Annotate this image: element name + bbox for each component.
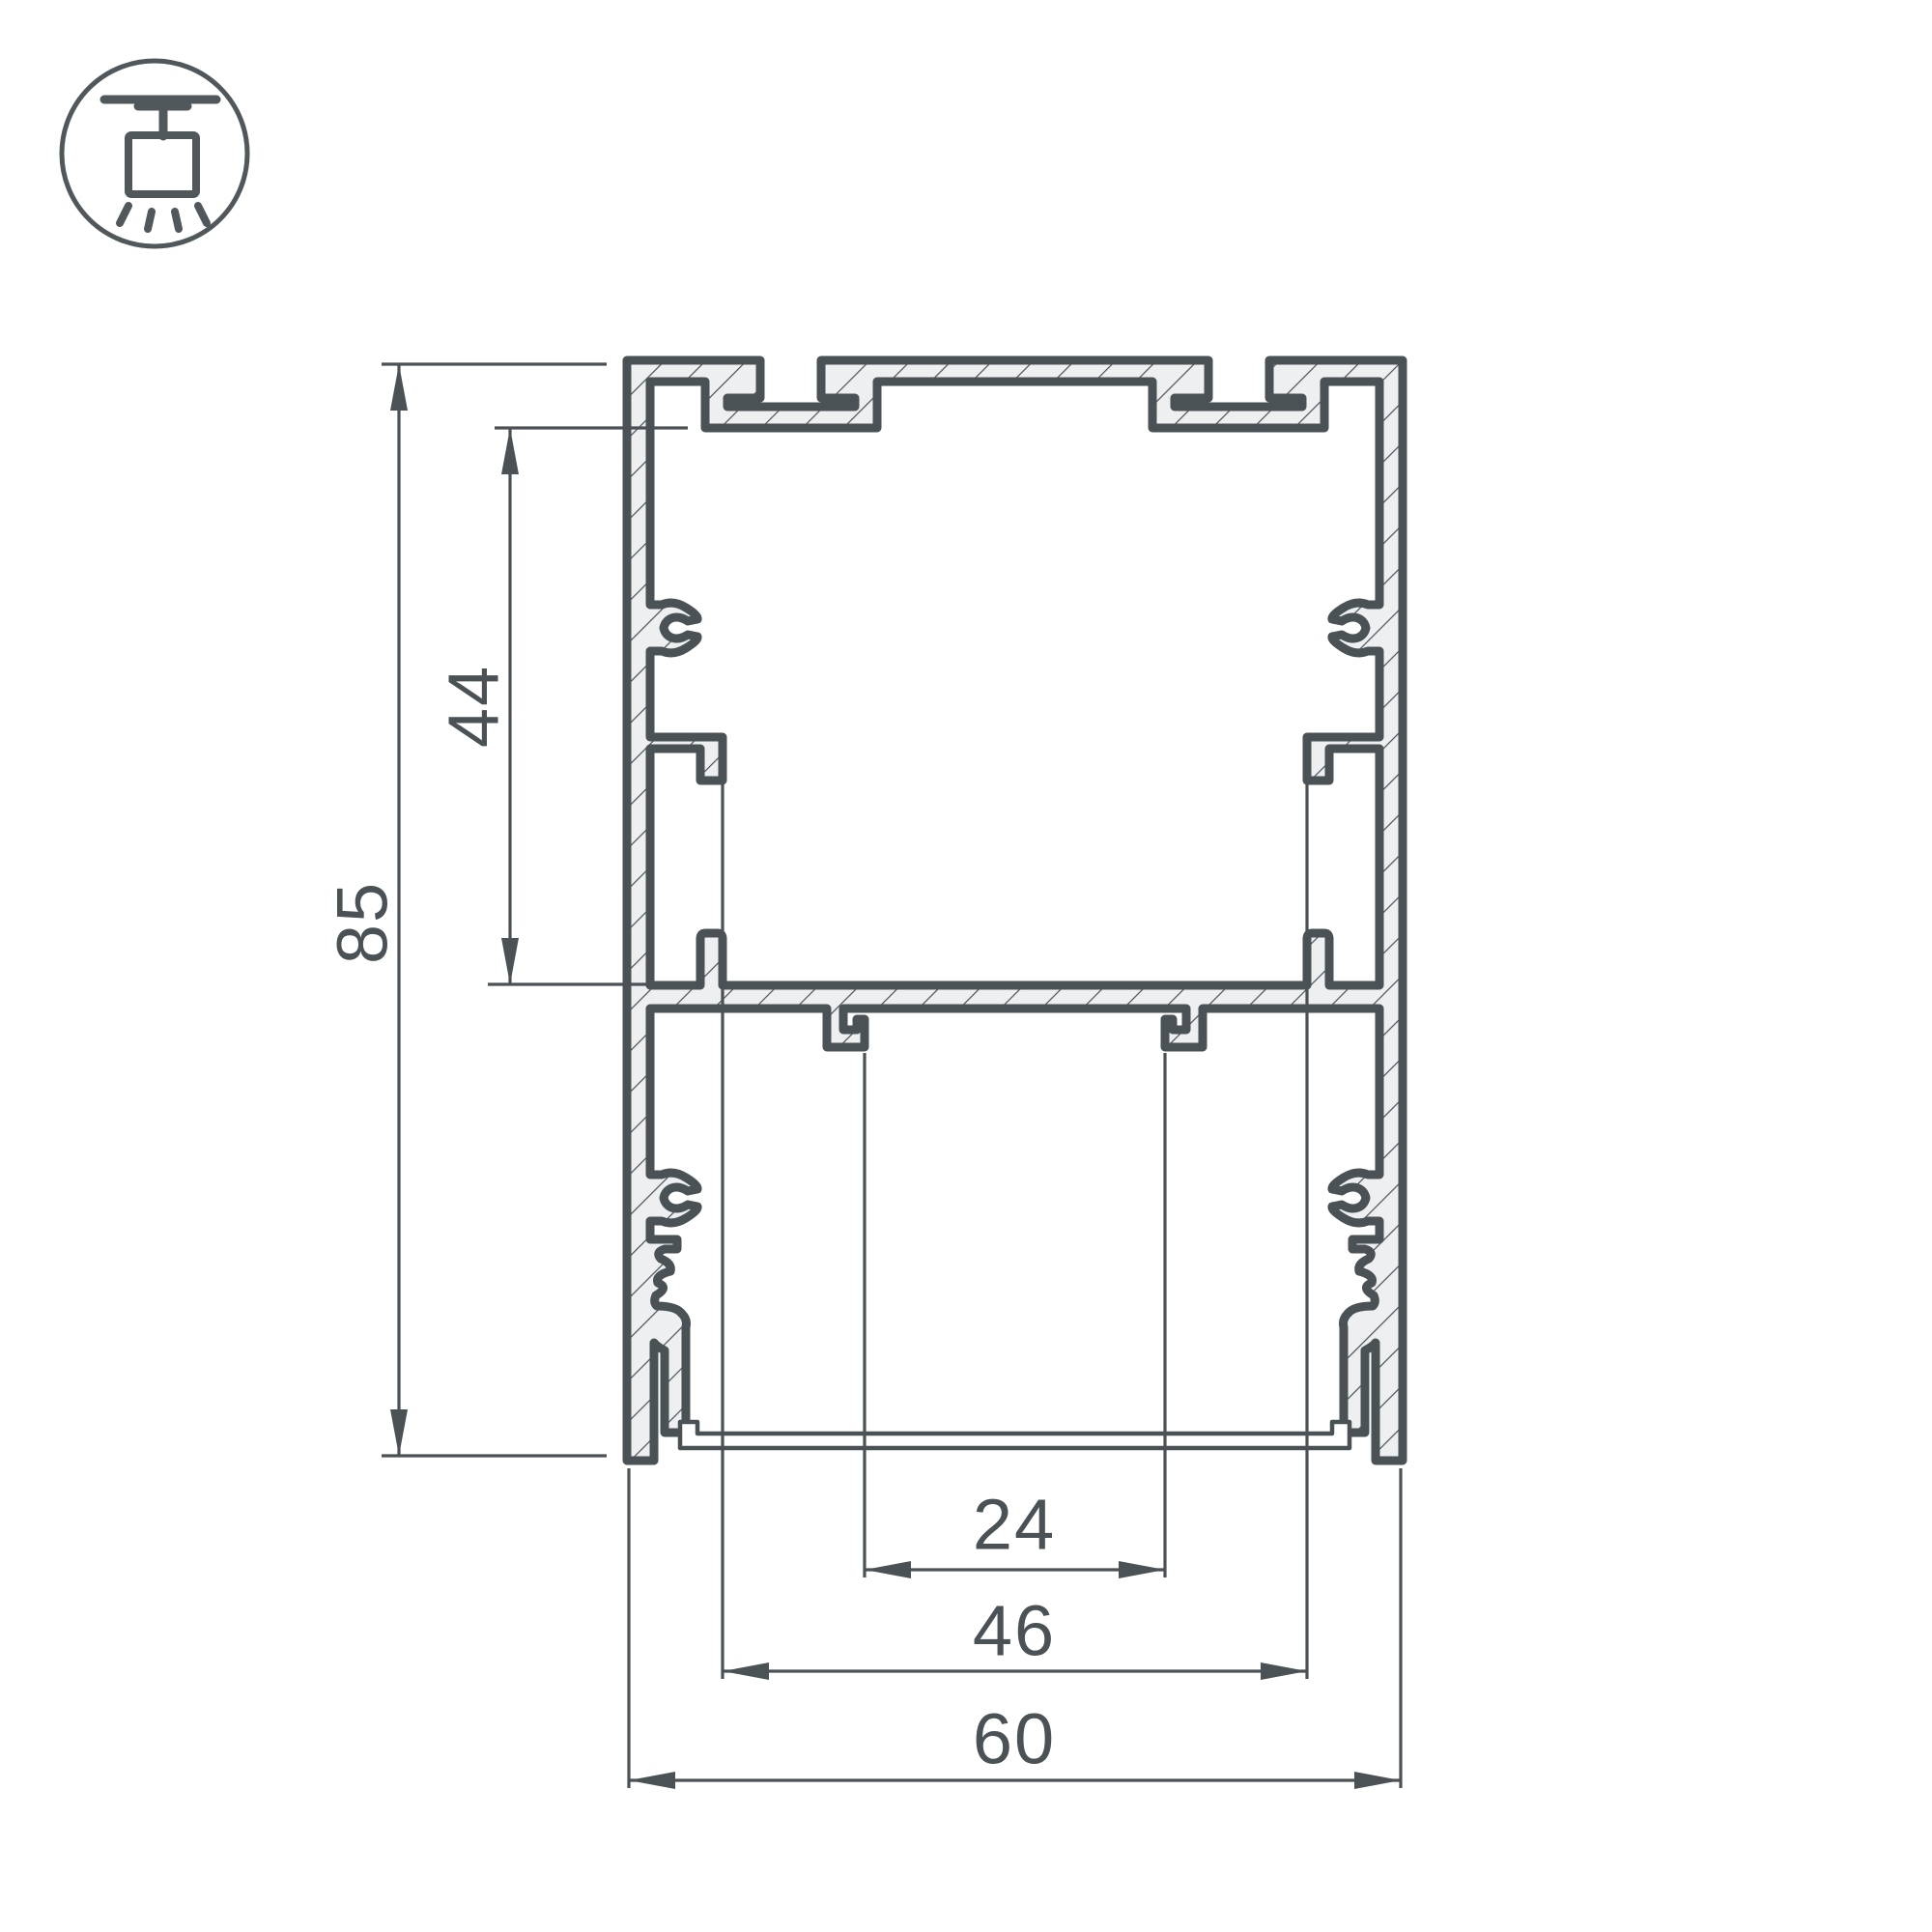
icon-circle: [62, 61, 247, 246]
diffuser-plate: [680, 1422, 1350, 1448]
label-inner-width: 46: [973, 1591, 1056, 1671]
dimensions: [382, 364, 1401, 1789]
profile-cross-section-drawing: 85 44 24 46 60: [0, 0, 1932, 1932]
label-upper-height: 44: [434, 665, 514, 748]
pendant-mount-icon: [62, 61, 247, 246]
profile-outline-left: [627, 360, 1015, 1461]
arrowhead-left: [723, 1662, 769, 1680]
label-overall-width: 60: [973, 1699, 1056, 1779]
arrowhead-right: [1354, 1772, 1401, 1789]
outer-contour: [627, 360, 1015, 1461]
arrowhead-left: [865, 1561, 911, 1578]
profile-metal-fill: [627, 360, 1403, 1461]
dimension-overall-height: [382, 364, 607, 1456]
arrowhead-up: [390, 364, 408, 411]
icon-lamp-box: [128, 135, 196, 194]
left-bracket-fill: [650, 737, 723, 781]
upper-chamber-contour: [650, 382, 1015, 985]
dimension-upper-height: [488, 428, 691, 984]
arrowhead-down: [390, 1409, 408, 1456]
profile-outline-right: [1014, 360, 1403, 1461]
label-led-channel-width: 24: [973, 1485, 1056, 1565]
arrowhead-right: [1119, 1561, 1165, 1578]
right-bracket-fill: [1307, 737, 1379, 781]
arrowhead-down: [501, 938, 519, 984]
label-overall-height: 85: [323, 881, 403, 964]
arrowhead-left: [629, 1772, 675, 1789]
arrowhead-up: [501, 428, 519, 474]
arrowhead-right: [1261, 1662, 1307, 1680]
icon-light-rays: [120, 206, 207, 229]
drawing-sheet: 85 44 24 46 60: [0, 0, 1932, 1932]
